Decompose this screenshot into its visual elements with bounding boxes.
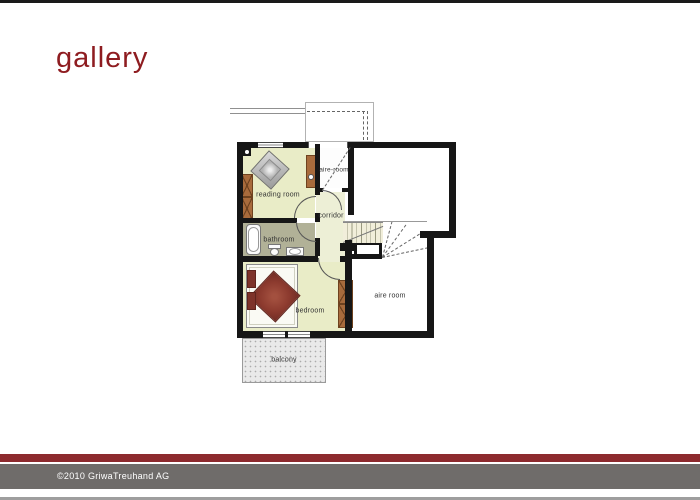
page-title: gallery — [56, 42, 148, 75]
copyright-text: ©2010 GriwaTreuhand AG — [57, 464, 169, 489]
wall-opening — [308, 142, 348, 148]
roof-dashed-line — [367, 111, 368, 140]
wall — [345, 240, 352, 332]
footer-bar: ©2010 GriwaTreuhand AG — [0, 464, 700, 489]
wall — [237, 331, 263, 338]
wall — [348, 142, 354, 215]
room-label-balcony: balcony — [271, 357, 297, 364]
roof-dashed-line — [363, 111, 364, 140]
stair-edge-line — [343, 221, 427, 222]
floor-outlet — [308, 174, 314, 180]
toilet — [270, 248, 279, 256]
bed-pillow — [247, 270, 256, 288]
wall — [420, 231, 456, 238]
top-border — [0, 0, 700, 3]
footer-accent-bar — [0, 454, 700, 462]
ridge-line — [230, 108, 305, 109]
wall — [243, 218, 297, 223]
window — [258, 142, 283, 148]
balcony-door — [288, 331, 310, 338]
wall — [237, 142, 243, 338]
room-label-aire-room-upper: aire-room — [319, 167, 349, 174]
wall — [340, 256, 346, 262]
room-label-bedroom: bedroom — [295, 308, 324, 315]
wall — [243, 256, 318, 262]
room-label-reading-room: reading room — [256, 192, 300, 199]
bathtub-interior — [248, 227, 259, 252]
wall — [352, 254, 382, 259]
room-label-bathroom: bathroom — [263, 237, 294, 244]
bed-pillow — [247, 292, 256, 310]
hinge-dot — [245, 150, 249, 154]
roof-dashed-line — [307, 111, 365, 112]
wall — [348, 142, 456, 148]
wall — [427, 231, 434, 338]
floorplan-image[interactable]: reading room aire-room corridor bathroom… — [230, 100, 460, 390]
wall — [449, 142, 456, 238]
room-label-aire-room: aire room — [374, 293, 405, 300]
wall — [310, 331, 434, 338]
upper-right-room-floor — [354, 148, 449, 231]
room-label-corridor: corridor — [318, 213, 343, 220]
wall — [342, 188, 354, 192]
wall — [283, 142, 308, 148]
gallery-page: gallery — [0, 0, 700, 500]
window — [263, 331, 285, 338]
sink — [289, 248, 301, 255]
ridge-line — [230, 113, 305, 114]
wall-corner — [237, 142, 251, 156]
